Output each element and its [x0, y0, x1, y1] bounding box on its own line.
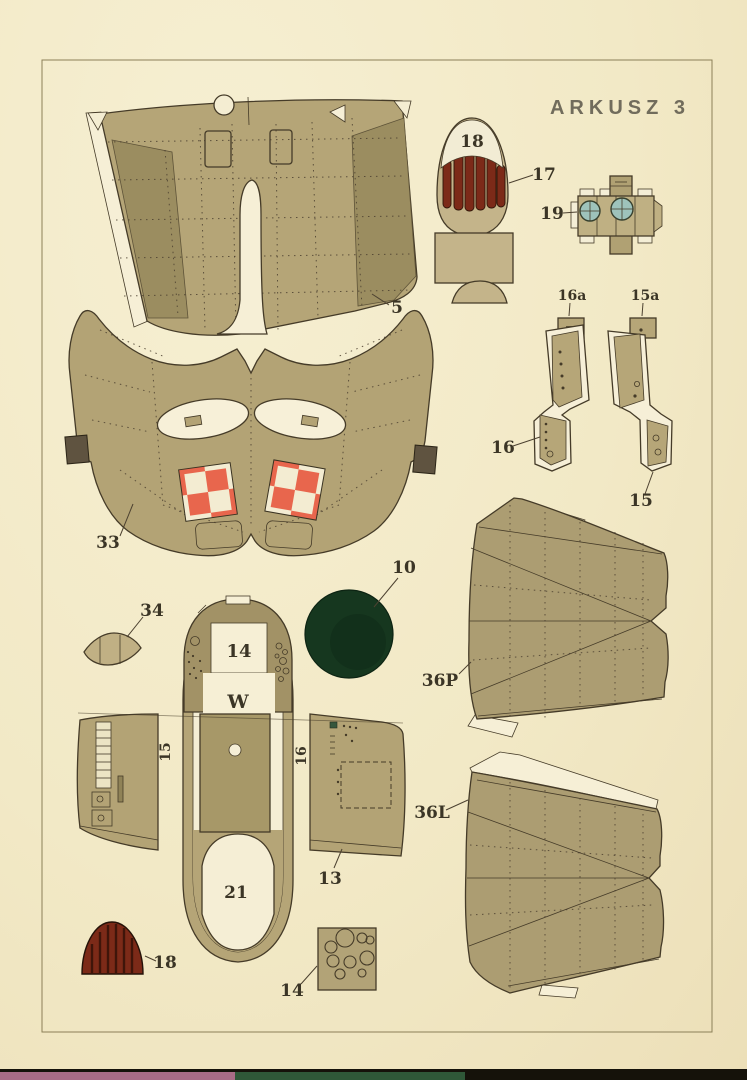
part-15a-label: 15a	[631, 288, 660, 304]
cowl-base-rect	[435, 233, 513, 283]
part-18-plug: 18	[82, 922, 177, 974]
part-14-deck-label: 14	[226, 641, 251, 662]
part-33-label: 33	[96, 533, 120, 553]
part-15-label: 15	[629, 491, 653, 511]
part-15-cockpit-label: 15	[158, 742, 174, 761]
part-15-strip: 15	[608, 331, 672, 511]
cowl-base-dome	[452, 281, 507, 303]
part-16-strip: 16	[491, 325, 589, 471]
part-16-label: 16	[491, 438, 515, 458]
part-34-body	[84, 633, 141, 665]
sheet-title: ARKUSZ 3	[550, 97, 690, 119]
part-36P-body	[469, 498, 668, 719]
part-33-right-tab	[413, 445, 437, 474]
part-5-fuselage-skin: 5	[86, 95, 417, 335]
part-15-lower	[647, 420, 668, 466]
part-36L-tab-bottom	[539, 985, 578, 998]
part-13-floor	[200, 714, 270, 832]
part-36L-body	[465, 772, 663, 993]
part-19-box: 19	[540, 176, 662, 254]
part-18-plug-label: 18	[153, 953, 177, 973]
part-33-wing-center: 33	[65, 311, 437, 556]
part-36P-panel: 36P	[422, 498, 668, 737]
part-34-label: 34	[140, 601, 164, 621]
part-5-right-panel	[352, 118, 416, 306]
part-16-upper	[552, 331, 582, 407]
part-17-label: 17	[532, 165, 556, 185]
part-10-label: 10	[392, 558, 416, 578]
part-18-cowl-label: 18	[460, 132, 484, 152]
part-19-label: 19	[540, 204, 564, 224]
checkerboard-insignia-right	[265, 460, 325, 520]
scan-edge-strip	[0, 1069, 747, 1080]
part-33-left-tab	[65, 435, 89, 464]
green-marker	[330, 722, 337, 728]
part-19-end-cap	[654, 200, 662, 232]
part-17-leader	[509, 175, 533, 183]
part-16-lower	[540, 415, 566, 465]
part-17-cowling: 18 17	[435, 118, 556, 303]
part-36L-panel: 36L	[414, 752, 663, 998]
part-10-disc: 10	[305, 558, 416, 678]
part-14-plate: 14	[280, 928, 376, 1001]
part-10-shade	[330, 614, 386, 670]
part-36P-label: 36P	[422, 671, 459, 691]
part-13-left-wing	[77, 714, 158, 850]
part-36L-label: 36L	[414, 803, 450, 823]
part-13-label: 13	[318, 869, 342, 889]
part-34-lens: 34	[84, 601, 164, 665]
part-13-right-wing	[310, 714, 405, 856]
part-16a-label: 16a	[558, 288, 587, 304]
part-14-deck: 14 W	[184, 596, 292, 713]
part-5-label: 5	[391, 298, 403, 318]
part-5-top-circle	[214, 95, 234, 115]
part-15a: 15a	[630, 288, 659, 338]
instrument-slot	[118, 776, 123, 802]
floor-hole	[229, 744, 241, 756]
part-14-plate-label: 14	[280, 981, 304, 1001]
sheet-canvas: ARKUSZ 3 5	[0, 0, 747, 1080]
deck-top-tab	[226, 596, 250, 604]
w-marking: W	[226, 691, 249, 713]
checkerboard-insignia-left	[179, 463, 238, 522]
model-sheet-page: ARKUSZ 3 5	[0, 0, 747, 1080]
part-16-cockpit-label: 16	[294, 746, 310, 765]
part-21-label: 21	[224, 883, 248, 903]
